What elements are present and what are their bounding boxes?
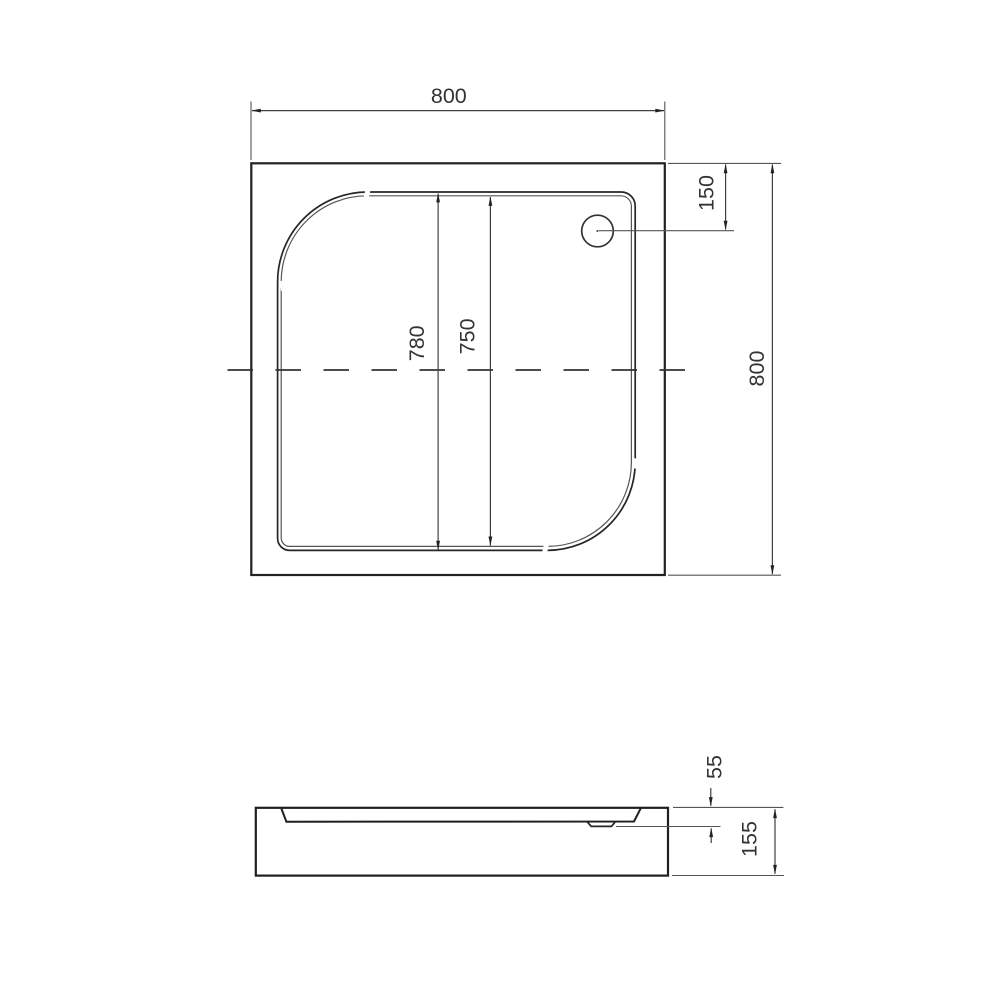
svg-text:750: 750 — [456, 318, 480, 354]
svg-text:800: 800 — [431, 84, 467, 108]
svg-text:780: 780 — [405, 325, 429, 361]
svg-text:800: 800 — [745, 351, 769, 387]
svg-text:150: 150 — [694, 175, 718, 211]
svg-text:155: 155 — [738, 821, 762, 857]
svg-text:55: 55 — [703, 755, 727, 779]
